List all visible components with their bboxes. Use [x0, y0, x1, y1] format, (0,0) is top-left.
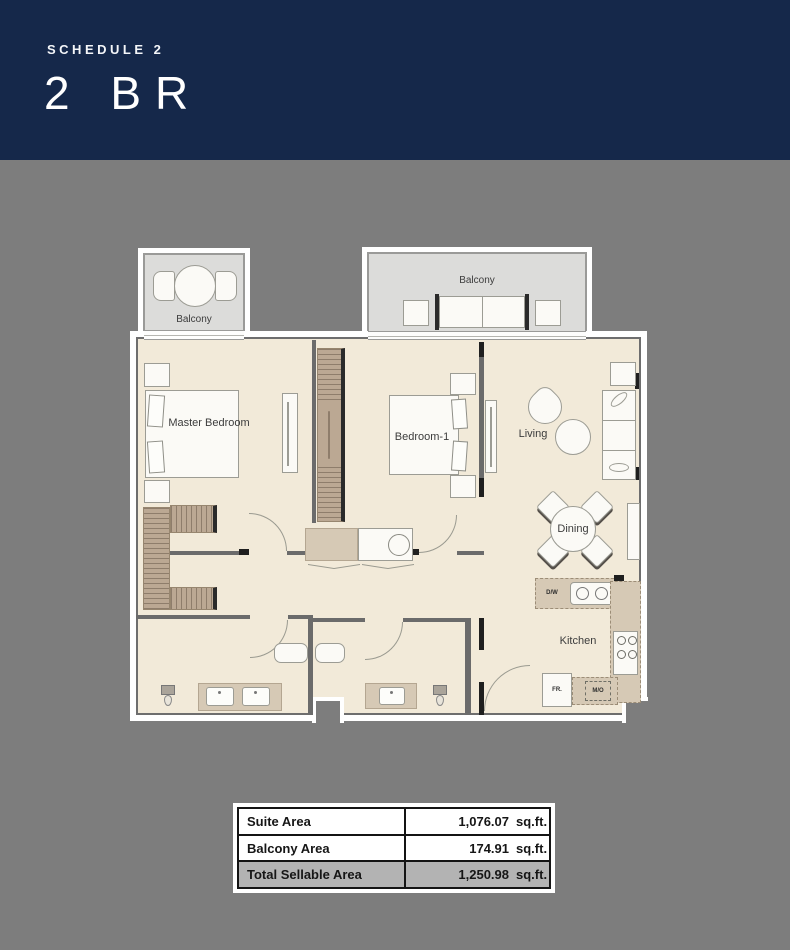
- area-table: Suite Area 1,076.07 sq.ft. Balcony Area …: [233, 803, 555, 893]
- exterior-notch: [312, 697, 344, 723]
- walkin-closet-icon: [170, 505, 217, 533]
- table-row: Balcony Area 174.91 sq.ft.: [239, 836, 549, 863]
- wall: [403, 618, 467, 622]
- pillow-icon: [147, 394, 165, 427]
- bath2-tub-icon: [315, 643, 345, 663]
- row-label: Suite Area: [239, 809, 406, 834]
- balcony-table-icon: [174, 265, 216, 307]
- balcony-chair-icon: [153, 271, 175, 301]
- row-unit: sq.ft.: [509, 841, 549, 856]
- page-title: 2 BR: [44, 66, 202, 120]
- living-sofa-icon: [602, 390, 636, 480]
- dining-table-icon: Dining: [550, 506, 596, 552]
- pillow-icon: [451, 441, 468, 472]
- balcony-left: Balcony: [143, 253, 245, 337]
- balcony-sofa-icon: [439, 296, 525, 328]
- nightstand-icon: [144, 363, 170, 387]
- pillow-icon: [451, 399, 468, 430]
- wall: [465, 618, 471, 715]
- header-banner: SCHEDULE 2 2 BR: [0, 0, 790, 160]
- balcony-side-table-icon: [535, 300, 561, 326]
- nightstand-icon: [450, 475, 476, 498]
- row-value: 1,250.98: [406, 867, 509, 882]
- row-label: Balcony Area: [239, 836, 406, 861]
- balcony-left-label: Balcony: [145, 313, 243, 326]
- bath1-sink-icon: [242, 687, 270, 706]
- pillow-icon: [147, 440, 165, 473]
- wall: [170, 551, 249, 555]
- bath1-toilet-icon: [161, 685, 175, 707]
- balcony-side-table-icon: [403, 300, 429, 326]
- floorplan-page: { "header": { "schedule_label": "SCHEDUL…: [0, 0, 790, 950]
- bath2-sink-icon: [379, 687, 405, 705]
- walkin-closet-icon: [143, 507, 170, 610]
- bath1-tub-icon: [274, 643, 308, 663]
- row-value: 1,076.07: [406, 814, 509, 829]
- living-label: Living: [501, 428, 565, 441]
- dining-label: Dining: [551, 523, 595, 536]
- master-bedroom-label: Master Bedroom: [164, 417, 254, 430]
- sofa-armrest: [435, 294, 439, 330]
- fridge-icon: FR.: [542, 673, 572, 707]
- tv-panel-icon: [485, 400, 497, 473]
- wall: [308, 615, 313, 715]
- fridge-label: FR.: [543, 687, 571, 693]
- balcony-main-label: Balcony: [369, 274, 585, 287]
- balcony-chair-icon: [215, 271, 237, 301]
- bedroom1-wardrobe-icon: [317, 348, 345, 522]
- walkin-closet-icon: [170, 587, 217, 610]
- nightstand-icon: [450, 373, 476, 395]
- row-unit: sq.ft.: [509, 867, 549, 882]
- floor-plan: Balcony Balcony: [136, 245, 648, 723]
- microwave-label: M/O: [586, 688, 610, 694]
- wall: [312, 340, 316, 523]
- wall: [136, 615, 250, 619]
- window-band: [368, 331, 586, 340]
- wall: [313, 618, 365, 622]
- sofa-armrest: [525, 294, 529, 330]
- balcony-main: Balcony: [367, 252, 587, 338]
- microwave-icon: M/O: [585, 681, 611, 701]
- console-icon: [627, 503, 640, 560]
- row-value: 174.91: [406, 841, 509, 856]
- window-band: [144, 330, 244, 340]
- row-label: Total Sellable Area: [239, 862, 406, 887]
- kitchen-sink-icon: [570, 582, 614, 605]
- wall-accent: [479, 478, 484, 497]
- wall-accent: [479, 618, 484, 650]
- side-table-icon: [610, 362, 636, 386]
- row-unit: sq.ft.: [509, 814, 549, 829]
- kitchen-label: Kitchen: [540, 635, 616, 648]
- wall: [479, 342, 484, 497]
- wall-accent: [239, 549, 249, 555]
- dishwasher-label: D/W: [540, 590, 564, 596]
- schedule-label: SCHEDULE 2: [47, 42, 164, 57]
- nightstand-icon: [144, 480, 170, 503]
- dresser-icon: [282, 393, 298, 473]
- wall: [457, 551, 484, 555]
- bath1-sink-icon: [206, 687, 234, 706]
- bedroom1-label: Bedroom-1: [374, 431, 470, 444]
- bath2-toilet-icon: [433, 685, 447, 707]
- table-row: Suite Area 1,076.07 sq.ft.: [239, 809, 549, 836]
- stove-hob-icon: [613, 631, 638, 675]
- table-row-total: Total Sellable Area 1,250.98 sq.ft.: [239, 862, 549, 887]
- wall-accent: [479, 342, 484, 357]
